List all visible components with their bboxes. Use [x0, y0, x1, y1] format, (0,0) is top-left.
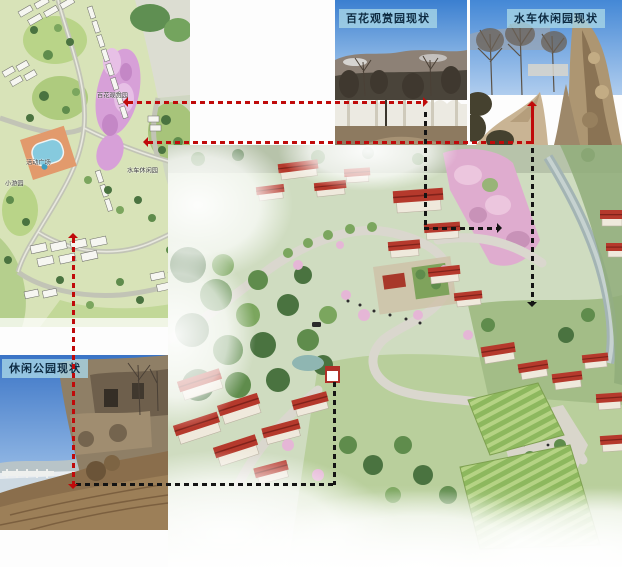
- master-plan-map: 百花观赏园 活动广场 水车休闲园 小游园: [0, 0, 190, 327]
- photo-leisure-current: [0, 355, 168, 530]
- aerial-render-art: [168, 145, 622, 567]
- caption-baihua: 百花观赏园现状: [339, 9, 437, 28]
- map-label-shuiche: 水车休闲园: [127, 168, 158, 174]
- photo-leisure-art: [0, 355, 168, 530]
- arrowhead: [118, 97, 128, 107]
- arrowhead: [497, 223, 507, 233]
- connector-red-leisure: [72, 238, 75, 484]
- map-label-xiaoyou: 小游园: [5, 181, 24, 187]
- connector-black-leisure-h: [76, 483, 336, 486]
- arrowhead: [68, 484, 78, 494]
- connector-black-baihua-v: [424, 112, 427, 229]
- arrowhead: [527, 302, 537, 312]
- caption-shuiche: 水车休闲园现状: [507, 9, 605, 28]
- aerial-render: [168, 145, 622, 567]
- arrowhead: [423, 97, 433, 107]
- arrowhead: [527, 96, 537, 106]
- connector-red-shuiche-up: [531, 106, 534, 144]
- map-label-huodong: 活动广场: [26, 160, 51, 166]
- connector-black-baihua-h: [424, 227, 498, 230]
- connector-black-shuiche: [531, 148, 534, 304]
- connector-red-shuiche: [148, 141, 533, 144]
- arrowhead: [138, 137, 148, 147]
- connector-red-baihua: [128, 101, 424, 104]
- planning-figure: 百花观赏园 活动广场 水车休闲园 小游园: [0, 0, 622, 567]
- caption-leisure: 休闲公园现状: [2, 359, 88, 378]
- arrowhead: [68, 228, 78, 238]
- connector-black-leisure-v: [333, 382, 336, 485]
